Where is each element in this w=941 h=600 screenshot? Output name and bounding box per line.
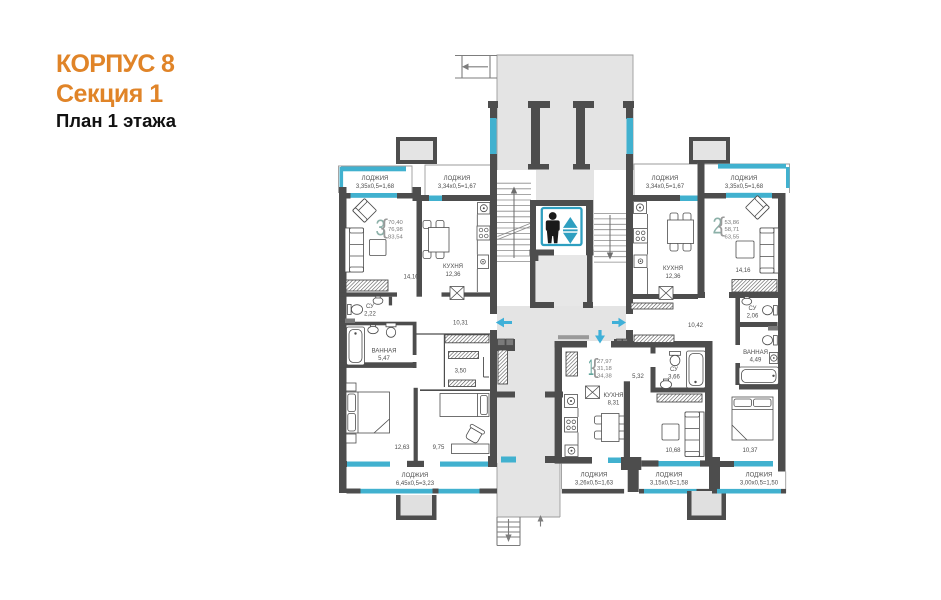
svg-text:6,45х0,5=3,23: 6,45х0,5=3,23 xyxy=(396,481,435,487)
svg-text:53,86: 53,86 xyxy=(725,220,740,226)
svg-text:СУ: СУ xyxy=(749,306,757,312)
svg-text:3,35х0,5=1,68: 3,35х0,5=1,68 xyxy=(725,184,764,190)
svg-text:12,36: 12,36 xyxy=(445,272,461,278)
svg-text:КУХНЯ: КУХНЯ xyxy=(443,264,463,270)
svg-text:План 1 этажа: План 1 этажа xyxy=(56,110,177,131)
svg-text:5,32: 5,32 xyxy=(632,374,644,380)
svg-text:ВАННАЯ: ВАННАЯ xyxy=(372,349,397,355)
svg-text:ЛОДЖИЯ: ЛОДЖИЯ xyxy=(581,473,608,479)
svg-text:5,47: 5,47 xyxy=(378,356,390,362)
svg-text:76,98: 76,98 xyxy=(388,227,403,233)
svg-text:КУХНЯ: КУХНЯ xyxy=(603,393,623,399)
svg-text:10,68: 10,68 xyxy=(665,448,681,454)
svg-text:ЛОДЖИЯ: ЛОДЖИЯ xyxy=(444,176,471,182)
svg-text:3,35х0,5=1,68: 3,35х0,5=1,68 xyxy=(356,184,395,190)
svg-text:58,71: 58,71 xyxy=(725,227,740,233)
svg-text:70,40: 70,40 xyxy=(388,220,403,226)
svg-text:10,42: 10,42 xyxy=(688,323,704,329)
svg-text:31,18: 31,18 xyxy=(597,366,612,372)
svg-text:ЛОДЖИЯ: ЛОДЖИЯ xyxy=(362,176,389,182)
svg-text:ЛОДЖИЯ: ЛОДЖИЯ xyxy=(656,473,683,479)
svg-text:34,38: 34,38 xyxy=(597,373,612,379)
svg-text:2,22: 2,22 xyxy=(364,312,376,318)
svg-text:63,55: 63,55 xyxy=(725,234,740,240)
svg-text:8,31: 8,31 xyxy=(608,401,620,407)
svg-text:СУ: СУ xyxy=(670,367,678,373)
svg-text:12,63: 12,63 xyxy=(394,445,410,451)
svg-text:3,50: 3,50 xyxy=(455,369,467,375)
svg-text:9,75: 9,75 xyxy=(433,445,445,451)
svg-text:3,00х0,5=1,50: 3,00х0,5=1,50 xyxy=(740,481,779,487)
svg-text:3,34х0,5=1,67: 3,34х0,5=1,67 xyxy=(438,184,477,190)
svg-text:КОРПУС 8: КОРПУС 8 xyxy=(56,50,175,78)
svg-text:14,16: 14,16 xyxy=(735,268,751,274)
svg-text:ВАННАЯ: ВАННАЯ xyxy=(743,350,768,356)
svg-text:12,36: 12,36 xyxy=(665,274,681,280)
svg-text:ЛОДЖИЯ: ЛОДЖИЯ xyxy=(731,176,758,182)
svg-text:83,54: 83,54 xyxy=(388,234,403,240)
svg-text:10,31: 10,31 xyxy=(453,321,469,327)
svg-text:4,49: 4,49 xyxy=(750,358,762,364)
svg-text:3,26х0,5=1,63: 3,26х0,5=1,63 xyxy=(575,481,614,487)
svg-text:3,66: 3,66 xyxy=(668,375,680,381)
svg-text:2,06: 2,06 xyxy=(747,314,759,320)
svg-text:14,16: 14,16 xyxy=(403,275,419,281)
svg-text:СУ: СУ xyxy=(366,304,374,310)
svg-text:Секция 1: Секция 1 xyxy=(56,80,163,108)
svg-text:ЛОДЖИЯ: ЛОДЖИЯ xyxy=(652,176,679,182)
svg-text:ЛОДЖИЯ: ЛОДЖИЯ xyxy=(746,473,773,479)
svg-text:10,37: 10,37 xyxy=(742,448,758,454)
svg-text:3,34х0,5=1,67: 3,34х0,5=1,67 xyxy=(646,184,685,190)
svg-text:3,15х0,5=1,58: 3,15х0,5=1,58 xyxy=(650,481,689,487)
svg-text:ЛОДЖИЯ: ЛОДЖИЯ xyxy=(402,473,429,479)
svg-text:27,97: 27,97 xyxy=(597,359,612,365)
svg-text:КУХНЯ: КУХНЯ xyxy=(663,266,683,272)
